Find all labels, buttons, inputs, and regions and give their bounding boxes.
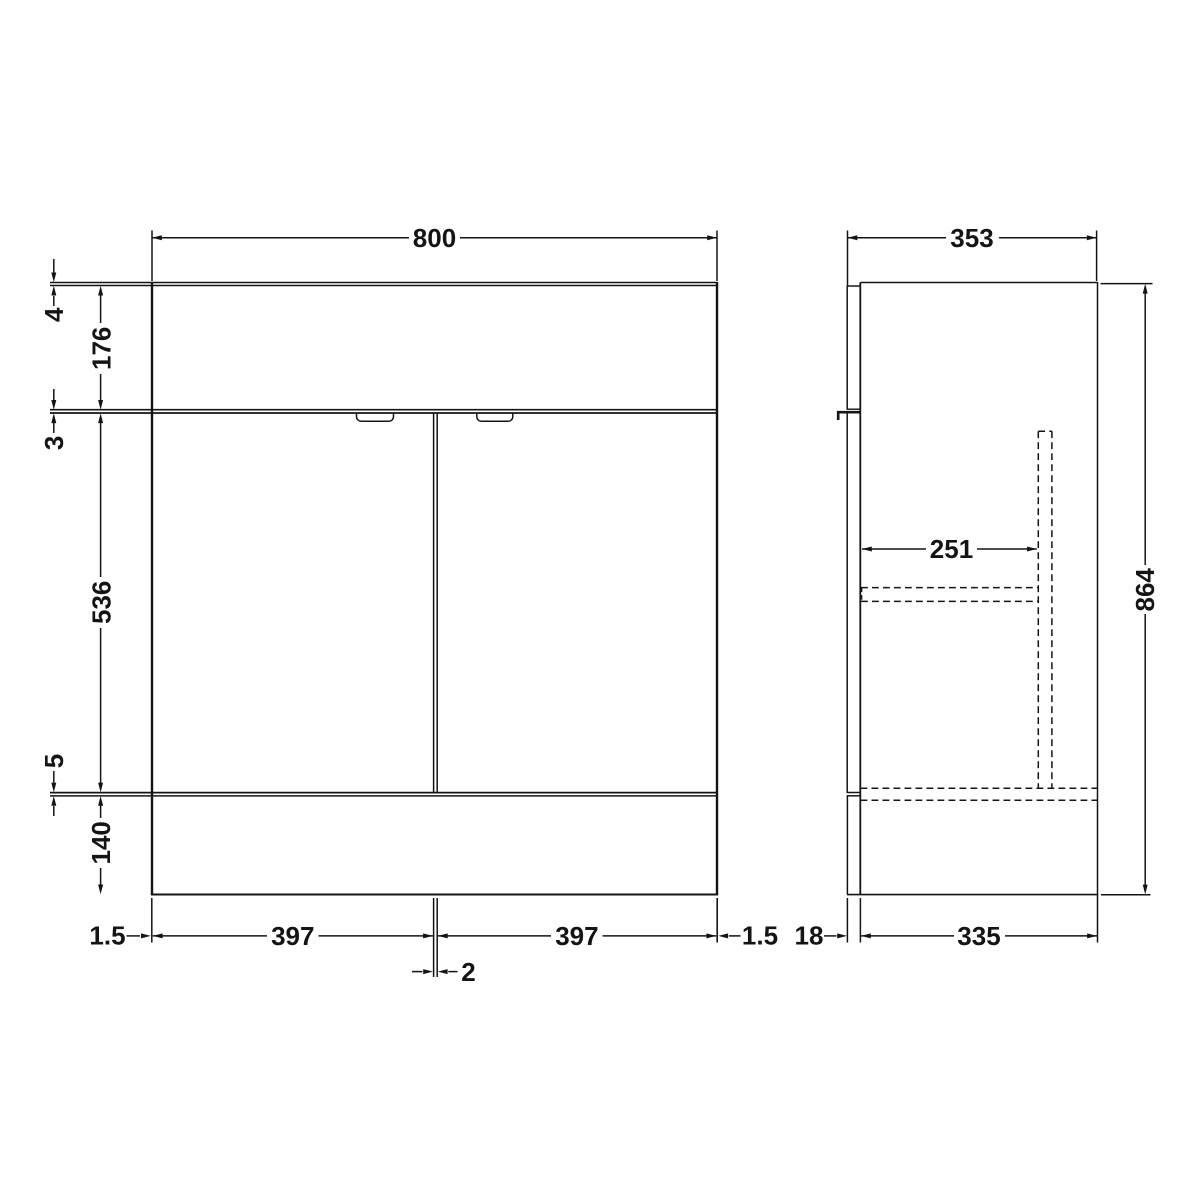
svg-text:140: 140 bbox=[86, 821, 116, 864]
svg-text:800: 800 bbox=[413, 223, 456, 253]
svg-text:2: 2 bbox=[461, 957, 475, 987]
svg-text:353: 353 bbox=[950, 223, 993, 253]
svg-text:3: 3 bbox=[39, 436, 69, 450]
svg-text:176: 176 bbox=[86, 327, 116, 370]
svg-text:1.5: 1.5 bbox=[89, 921, 125, 951]
svg-text:335: 335 bbox=[957, 921, 1000, 951]
svg-text:397: 397 bbox=[271, 921, 314, 951]
svg-text:18: 18 bbox=[795, 921, 824, 951]
svg-text:5: 5 bbox=[39, 754, 69, 768]
svg-text:251: 251 bbox=[930, 534, 973, 564]
svg-text:4: 4 bbox=[39, 307, 69, 322]
svg-text:1.5: 1.5 bbox=[742, 921, 778, 951]
svg-text:864: 864 bbox=[1130, 568, 1160, 612]
svg-text:536: 536 bbox=[86, 581, 116, 624]
svg-text:397: 397 bbox=[555, 921, 598, 951]
